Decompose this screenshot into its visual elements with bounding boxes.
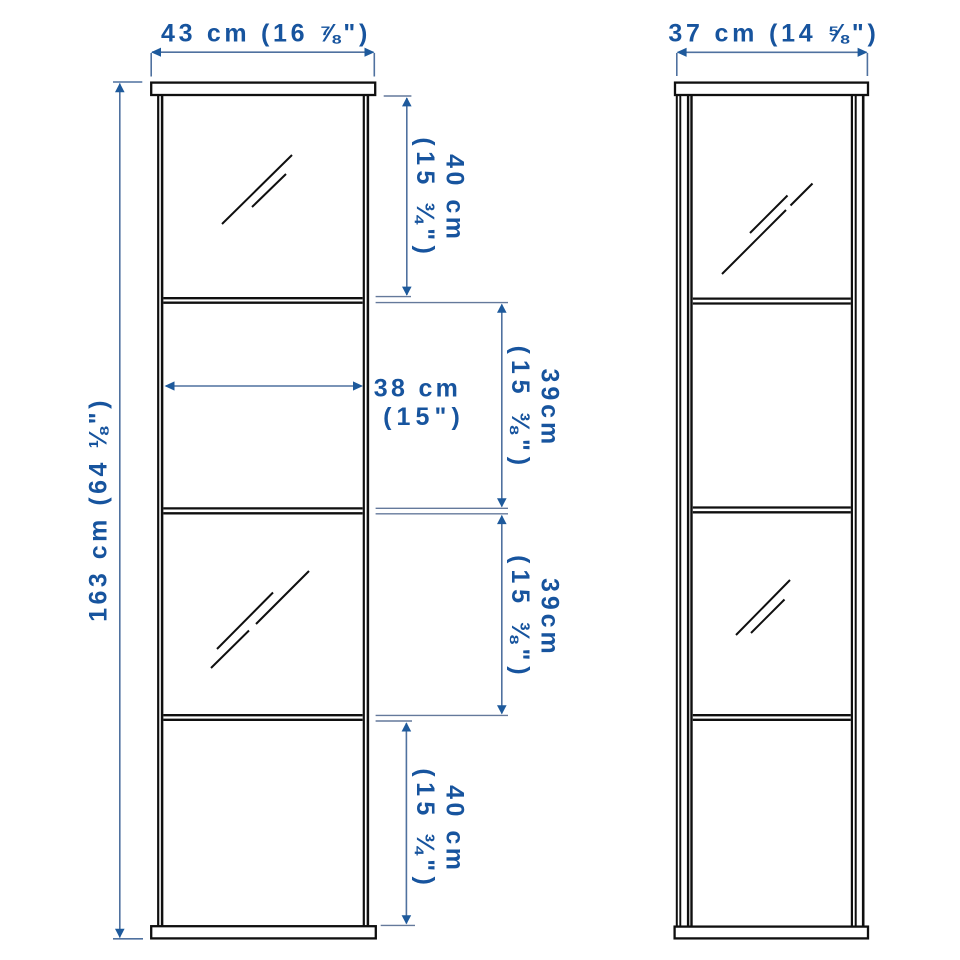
svg-text:(15 ⅜"): (15 ⅜") [506, 346, 534, 471]
svg-text:43 cm (16 ⅞"): 43 cm (16 ⅞") [161, 20, 371, 48]
svg-text:(15 ¾"): (15 ¾") [411, 137, 439, 259]
svg-text:39cm: 39cm [536, 369, 564, 449]
svg-text:40 cm: 40 cm [441, 785, 469, 873]
svg-text:163 cm (64 ⅛"): 163 cm (64 ⅛") [85, 397, 113, 622]
svg-text:(15 ¾"): (15 ¾") [411, 768, 439, 890]
svg-text:(15 ⅜"): (15 ⅜") [506, 555, 534, 680]
svg-text:37 cm (14 ⅝"): 37 cm (14 ⅝") [668, 20, 879, 48]
svg-text:(15"): (15") [383, 403, 465, 431]
svg-text:40 cm: 40 cm [441, 154, 469, 242]
svg-text:38 cm: 38 cm [374, 375, 461, 403]
svg-text:39cm: 39cm [536, 578, 564, 658]
